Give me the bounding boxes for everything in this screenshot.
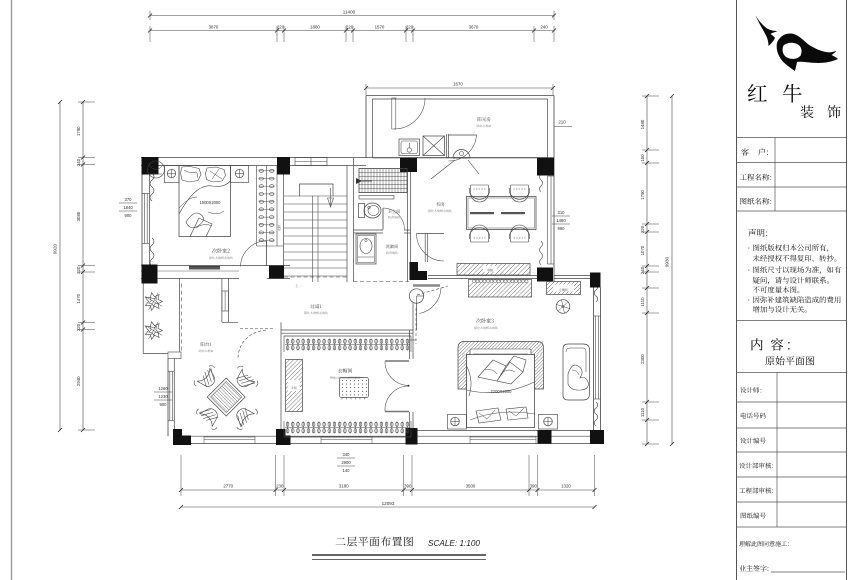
svg-text:1790: 1790 [640, 190, 645, 200]
svg-text:900: 900 [125, 213, 133, 218]
svg-text:230: 230 [276, 484, 284, 489]
svg-text:220: 220 [277, 25, 285, 30]
svg-text:2770: 2770 [223, 484, 233, 489]
svg-text:220: 220 [640, 225, 645, 233]
svg-text:310: 310 [558, 210, 566, 215]
svg-text:390: 390 [404, 484, 412, 489]
svg-text::: : [772, 488, 774, 495]
svg-text:210: 210 [558, 120, 566, 125]
svg-text:340: 340 [343, 452, 351, 457]
svg-text:1230: 1230 [158, 394, 168, 399]
svg-text:3080: 3080 [76, 211, 81, 221]
svg-text:3870: 3870 [209, 25, 219, 30]
svg-text:2200X2000: 2200X2000 [491, 389, 513, 394]
svg-text:1480: 1480 [640, 119, 645, 129]
svg-text:2300: 2300 [640, 354, 645, 364]
svg-text:2940: 2940 [76, 376, 81, 386]
svg-text::: : [770, 173, 772, 182]
svg-text:1500X2000: 1500X2000 [200, 200, 222, 205]
svg-text:9930: 9930 [665, 256, 670, 267]
svg-text::: : [301, 284, 302, 288]
svg-text:3500: 3500 [466, 484, 476, 489]
svg-text:1280: 1280 [158, 386, 168, 391]
svg-text::: : [767, 566, 769, 573]
svg-text:220: 220 [406, 25, 414, 30]
svg-text:1570: 1570 [375, 25, 385, 30]
svg-text::: : [787, 338, 791, 353]
svg-text:390: 390 [530, 484, 538, 489]
svg-text:220: 220 [76, 323, 81, 331]
svg-text:140: 140 [343, 468, 351, 473]
svg-text:1070: 1070 [640, 245, 645, 255]
svg-text:370: 370 [125, 197, 133, 202]
svg-text:1880: 1880 [310, 25, 320, 30]
svg-text:1790: 1790 [76, 126, 81, 136]
svg-text:3670: 3670 [469, 25, 479, 30]
svg-text:240: 240 [640, 266, 645, 274]
svg-text:·: · [748, 244, 751, 253]
svg-text:1470: 1470 [76, 293, 81, 303]
svg-text:900: 900 [160, 402, 168, 407]
svg-text:SCALE: 1:100: SCALE: 1:100 [428, 539, 480, 548]
svg-text:9920: 9920 [53, 243, 58, 254]
svg-text:1840: 1840 [123, 205, 133, 210]
svg-text:·: · [748, 266, 751, 275]
svg-text::: : [760, 388, 762, 395]
svg-text:2900: 2900 [341, 460, 351, 465]
svg-text::: : [772, 463, 774, 470]
svg-text:1110: 1110 [640, 407, 645, 417]
svg-text:1110: 1110 [640, 297, 645, 307]
svg-text:220: 220 [346, 25, 354, 30]
svg-text:1480: 1480 [556, 218, 566, 223]
svg-text:990: 990 [558, 226, 566, 231]
svg-text:240: 240 [76, 158, 81, 166]
svg-text:11400: 11400 [343, 10, 356, 15]
svg-text::: : [766, 228, 768, 238]
svg-text:100: 100 [640, 154, 645, 162]
svg-text:·: · [748, 296, 751, 305]
svg-text:1670: 1670 [453, 82, 463, 87]
svg-text:220: 220 [76, 266, 81, 274]
svg-text:1320: 1320 [561, 484, 571, 489]
svg-text::: : [767, 148, 769, 157]
svg-text:12093: 12093 [382, 501, 395, 506]
svg-text:240: 240 [540, 25, 548, 30]
svg-text:3180: 3180 [339, 484, 349, 489]
svg-text::: : [770, 197, 772, 206]
